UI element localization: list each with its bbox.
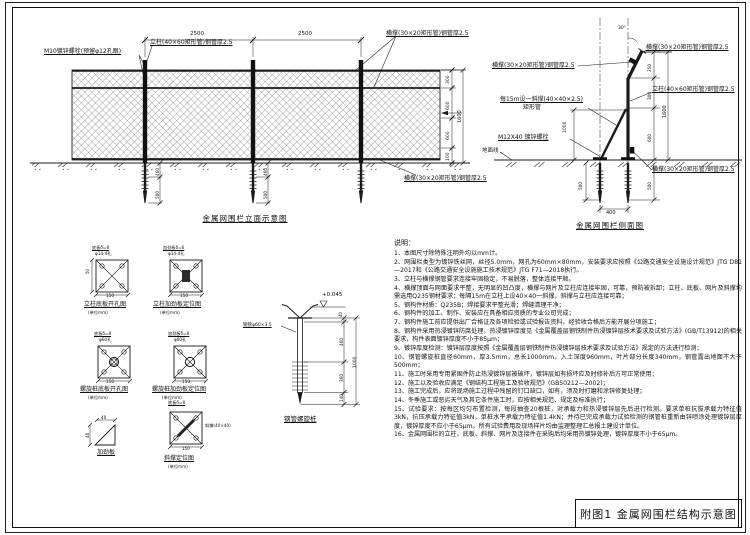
tiny-label: φ60孔 — [174, 338, 186, 342]
dim-pile-detail: 1000 — [354, 357, 359, 368]
dim-detail: 150 — [182, 380, 190, 384]
dim-height: 600 — [648, 134, 652, 142]
dim-detail: 150 — [106, 294, 114, 298]
tiny-label: 底板δ=8 — [94, 332, 111, 336]
dim-height: 250 — [648, 64, 652, 72]
detail-title-post-baseplate: 立柱底板开孔图 — [84, 302, 126, 308]
dim-height: 600 — [447, 131, 452, 140]
dim-detail: 150 — [180, 294, 188, 298]
drawing-sheet: 金属网围栏立面示意图 金属网围栏侧面图 说明： 1、本图尺寸除特殊注明外均以mm… — [0, 0, 750, 535]
detail-scale: (单位mm) — [88, 396, 108, 400]
elevation-mark: +0.045 — [322, 293, 342, 299]
tiny-label: 底板δ=8 — [92, 246, 109, 250]
detail-title-stiffener-plate: 加劲板 — [97, 450, 115, 456]
detail-title-brace-location: 斜撑定位图 — [164, 456, 194, 462]
dim-pile-detail: 460 — [340, 338, 344, 346]
dim-detail: 150 — [182, 447, 190, 451]
dim-pile-detail: 140 — [340, 394, 344, 402]
detail-title-screw-pile: 钢管螺旋桩 — [284, 416, 317, 423]
detail-scale: (单位mm) — [168, 465, 188, 469]
dim-pile: 500 — [648, 182, 652, 190]
dim-pile: 500 — [579, 182, 583, 190]
detail-scale: (单位mm) — [88, 311, 108, 315]
detail-scale: (单位mm) — [160, 311, 180, 315]
label-top-rail-side: 横撑(30×20矩形管)钢管厚2.5 — [646, 45, 729, 51]
tiny-label: φ14-4孔 — [168, 252, 184, 256]
label-left-rail-side: 横撑(30×20矩形管)钢管厚2.5 — [492, 63, 575, 69]
dim-height: 600 — [447, 101, 452, 110]
dim-span: 2500 — [298, 32, 312, 38]
dim-height: 300 — [447, 75, 452, 84]
dim-pile: 460 — [264, 168, 268, 176]
dim-pile: 460 — [156, 168, 160, 176]
detail-title-pile-baseplate: 螺旋桩底板开孔图 — [80, 387, 128, 393]
annotation-layer: M10镀锌螺栓(预留φ12孔眼)立柱(40×60矩形管)钢管厚2.5横撑(30×… — [0, 0, 750, 535]
dim-height: 100 — [447, 152, 452, 161]
dim-total-height: 1600 — [663, 105, 668, 118]
dim-detail: 150 — [106, 380, 114, 384]
tiny-label: 加劲板δ=6 — [168, 332, 189, 336]
dim-span: 400 — [606, 211, 616, 216]
tiny-label: 斜撑(40×40) — [205, 424, 231, 428]
dim-pile-detail: 360 — [340, 374, 344, 382]
dim-pile-detail: 40 — [339, 312, 343, 317]
dim-detail: 40 — [86, 433, 90, 438]
label-bottom-rail-elevation: 横撑(30×20矩形管)钢管厚2.5 — [404, 176, 487, 182]
dim-pile: 500 — [264, 191, 268, 199]
tiny-label: φ14-4孔 — [95, 252, 111, 256]
label-m10-bolt: M10镀锌螺栓(预留φ12孔眼) — [44, 49, 121, 55]
dim-span: 2500 — [190, 32, 204, 38]
label-top-rail-elevation: 横撑(30×20矩形管)钢管厚2.5 — [386, 31, 469, 37]
tiny-label: 底板δ=8 — [168, 401, 185, 405]
label-m12-bolt: M12X40 镀锌螺栓 — [498, 135, 548, 141]
dim-total-height: 1600 — [458, 110, 463, 123]
dim-detail: 40 — [101, 416, 106, 420]
detail-title-post-stiffener: 立柱加劲板定位图 — [153, 302, 201, 308]
dim-detail: 50 — [86, 269, 90, 274]
label-bottom-rail-side: 横撑(30×20矩形管)钢管厚2.5 — [652, 167, 735, 173]
label-ground-line: 地面线 — [482, 149, 499, 155]
label-brace-side: 每15m设一斜撑(40×40×2.5) — [500, 97, 583, 103]
label-pipe-spec: 钢管φ60×3.5 — [243, 324, 272, 329]
dim-height: 300 — [648, 92, 652, 100]
dim-angle: 30° — [618, 27, 626, 32]
label-post-side: 立柱(40×60矩形管)钢管厚2.5 — [652, 87, 735, 93]
dim-height: 1000 — [564, 122, 569, 133]
tiny-label: 加劲板δ=6 — [163, 246, 184, 250]
detail-title-pile-stiffener: 螺旋桩加劲板定位图 — [152, 387, 206, 393]
label-post-elevation: 立柱(40×60矩形管)钢管厚2.5 — [150, 40, 233, 46]
label-brace-side-2: 矩形管 — [523, 105, 541, 111]
dim-pile: 500 — [156, 191, 160, 199]
tiny-label: φ60孔 — [99, 338, 111, 342]
